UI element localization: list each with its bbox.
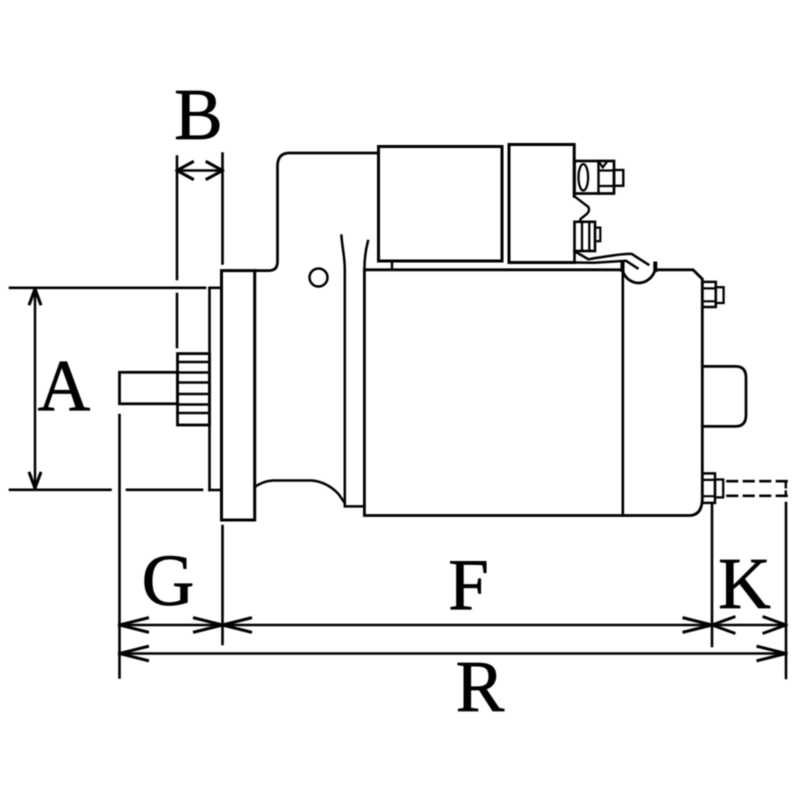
svg-text:G: G <box>142 540 195 621</box>
svg-text:K: K <box>718 543 771 624</box>
svg-text:R: R <box>456 646 505 727</box>
svg-text:F: F <box>448 544 489 625</box>
svg-text:B: B <box>174 74 223 155</box>
svg-text:A: A <box>38 345 91 426</box>
